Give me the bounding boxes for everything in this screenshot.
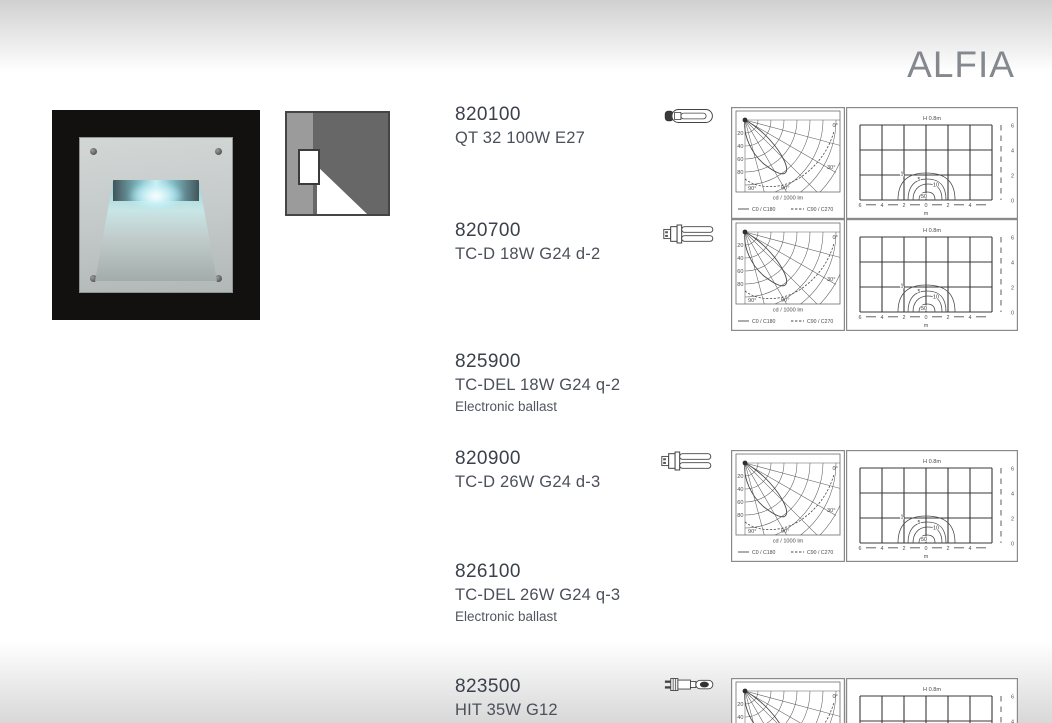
product-row: 823500 HIT 35W G12 [455,676,558,720]
polar-diagram [731,107,845,219]
product-note: Electronic ballast [455,399,620,414]
polar-diagram [731,450,845,562]
product-row: 825900 TC-DEL 18W G24 q-2 Electronic bal… [455,351,620,414]
screw-icon [215,148,222,155]
product-lamp: TC-DEL 18W G24 q-2 [455,376,620,395]
photo-lamp-glow [129,181,183,211]
product-code: 820100 [455,104,585,126]
product-code: 825900 [455,351,620,373]
polar-diagram [731,678,845,723]
product-code: 826100 [455,561,620,583]
product-code: 820700 [455,220,600,242]
photo-light-recess [95,180,217,281]
product-lamp: HIT 35W G12 [455,701,558,720]
halogen-lamp-icon [660,107,718,125]
catalog-page: ALFIA 820100 QT 32 100W E27 820700 TC-D … [0,0,1052,723]
isolux-diagram [846,450,1018,562]
product-code: 823500 [455,676,558,698]
product-row: 826100 TC-DEL 26W G24 q-3 Electronic bal… [455,561,620,624]
tc-d-lamp-icon [659,223,719,245]
polar-diagram [731,219,845,331]
screw-icon [90,148,97,155]
product-row: 820900 TC-D 26W G24 d-3 [455,448,600,492]
top-gradient [0,0,1052,72]
isolux-diagram [846,219,1018,331]
photo-faceplate [79,137,233,293]
product-lamp: TC-DEL 26W G24 q-3 [455,586,620,605]
product-code: 820900 [455,448,600,470]
page-title: ALFIA [907,44,1015,86]
mounting-diagram [285,111,390,216]
product-lamp: TC-D 26W G24 d-3 [455,473,600,492]
isolux-diagram [846,678,1018,723]
product-note: Electronic ballast [455,609,620,624]
isolux-diagram [846,107,1018,219]
product-row: 820700 TC-D 18W G24 d-2 [455,220,600,264]
hit-lamp-icon [664,676,716,694]
product-lamp: QT 32 100W E27 [455,129,585,148]
recessed-luminaire-shape [299,150,319,184]
product-photo [52,110,260,320]
product-row: 820100 QT 32 100W E27 [455,104,585,148]
product-lamp: TC-D 18W G24 d-2 [455,245,600,264]
tc-d-lamp-icon [657,450,717,472]
